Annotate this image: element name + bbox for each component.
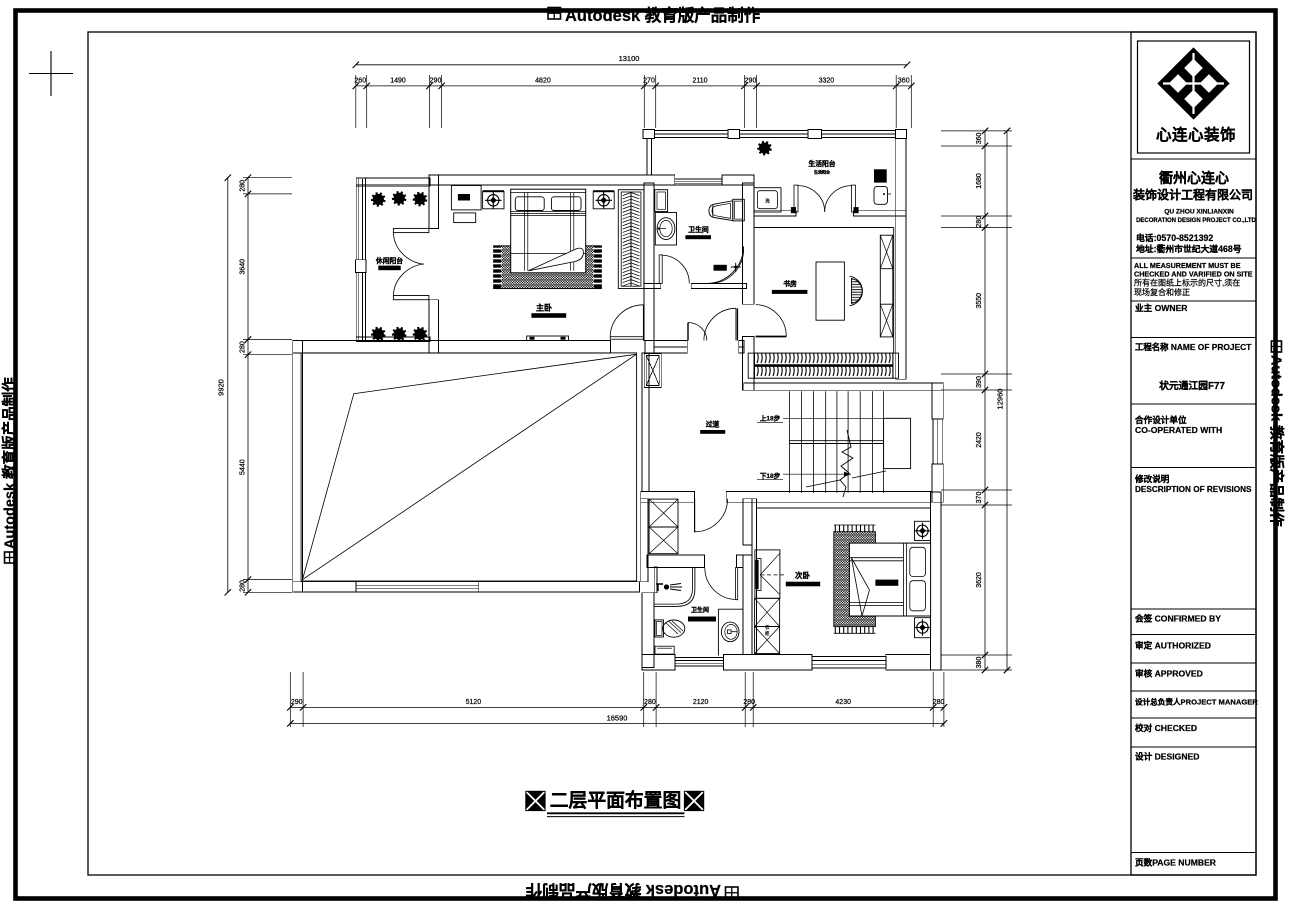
svg-text:二层平面布置图: 二层平面布置图 xyxy=(550,789,681,811)
svg-text:1680: 1680 xyxy=(976,173,983,189)
svg-text:2110: 2110 xyxy=(693,78,708,85)
svg-text:CO-OPERATED WITH: CO-OPERATED WITH xyxy=(1135,425,1222,435)
svg-text:上18步: 上18步 xyxy=(760,414,781,423)
svg-text:Autodesk 教育版产品制作: Autodesk 教育版产品制作 xyxy=(525,881,721,901)
svg-text:过道: 过道 xyxy=(706,420,720,429)
svg-text:5440: 5440 xyxy=(240,459,247,475)
svg-text:DESCRIPTION OF REVISIONS: DESCRIPTION OF REVISIONS xyxy=(1135,485,1252,494)
svg-text:衢州心连心: 衢州心连心 xyxy=(1159,170,1229,186)
svg-text:所有在图纸上标示的尺寸,须在: 所有在图纸上标示的尺寸,须在 xyxy=(1134,278,1240,288)
svg-text:次卧: 次卧 xyxy=(795,570,810,580)
svg-text:休闲阳台: 休闲阳台 xyxy=(375,256,403,265)
svg-text:Autodesk 教育版产品制作: Autodesk 教育版产品制作 xyxy=(565,5,761,25)
svg-text:370: 370 xyxy=(976,492,983,504)
svg-text:360: 360 xyxy=(898,78,910,85)
svg-text:270: 270 xyxy=(643,78,655,85)
svg-text:Autodesk 教育版产品制作: Autodesk 教育版产品制作 xyxy=(1268,355,1286,527)
svg-text:280: 280 xyxy=(240,180,247,192)
svg-text:洗: 洗 xyxy=(765,198,770,205)
svg-text:3550: 3550 xyxy=(976,293,983,309)
svg-text:3320: 3320 xyxy=(819,78,835,85)
svg-text:DECORATION DESIGN PROJECT CO.,: DECORATION DESIGN PROJECT CO.,LTD xyxy=(1136,218,1256,224)
svg-text:16590: 16590 xyxy=(607,714,628,723)
svg-text:13100: 13100 xyxy=(619,54,640,63)
svg-text:390: 390 xyxy=(976,376,983,388)
svg-text:290: 290 xyxy=(430,78,442,85)
svg-text:现场复合和修正: 现场复合和修正 xyxy=(1134,287,1190,297)
svg-text:1490: 1490 xyxy=(390,78,406,85)
svg-text:12960: 12960 xyxy=(996,389,1005,410)
svg-text:280: 280 xyxy=(240,341,247,353)
svg-text:卫生间: 卫生间 xyxy=(688,225,709,234)
svg-text:280: 280 xyxy=(976,216,983,228)
svg-text:4820: 4820 xyxy=(535,78,551,85)
svg-text:280: 280 xyxy=(933,699,945,706)
svg-text:卫生间: 卫生间 xyxy=(691,606,709,614)
svg-text:地址:衢州市世纪大道468号: 地址:衢州市世纪大道468号 xyxy=(1136,243,1242,254)
svg-text:审核 APPROVED: 审核 APPROVED xyxy=(1135,668,1203,679)
svg-text:Autodesk 教育版产品制作: Autodesk 教育版产品制作 xyxy=(1,377,19,549)
svg-text:4230: 4230 xyxy=(835,699,851,706)
svg-text:QU ZHOU XINLIANXIN: QU ZHOU XINLIANXIN xyxy=(1164,209,1234,216)
svg-text:衣: 衣 xyxy=(765,624,770,631)
svg-text:3620: 3620 xyxy=(976,572,983,588)
svg-text:生活阳台: 生活阳台 xyxy=(814,169,830,175)
svg-text:3640: 3640 xyxy=(240,259,247,275)
svg-text:合作设计单位: 合作设计单位 xyxy=(1135,414,1187,425)
svg-text:设计 DESIGNED: 设计 DESIGNED xyxy=(1135,751,1199,762)
svg-text:设计总负责人PROJECT MANAGER: 设计总负责人PROJECT MANAGER xyxy=(1135,697,1258,707)
svg-text:260: 260 xyxy=(354,78,366,85)
svg-text:380: 380 xyxy=(976,657,983,669)
svg-text:审定 AUTHORIZED: 审定 AUTHORIZED xyxy=(1135,640,1211,651)
svg-text:下18步: 下18步 xyxy=(760,471,781,480)
svg-text:书房: 书房 xyxy=(783,279,797,288)
svg-text:2420: 2420 xyxy=(976,432,983,448)
svg-text:CHECKED AND VARIFIED ON SITE: CHECKED AND VARIFIED ON SITE xyxy=(1134,270,1253,279)
svg-text:页数PAGE NUMBER: 页数PAGE NUMBER xyxy=(1135,857,1217,868)
svg-text:装饰设计工程有限公司: 装饰设计工程有限公司 xyxy=(1132,187,1253,202)
svg-text:生活阳台: 生活阳台 xyxy=(808,159,835,168)
svg-text:9920: 9920 xyxy=(217,379,226,396)
svg-text:280: 280 xyxy=(743,699,755,706)
svg-text:柜: 柜 xyxy=(765,630,770,637)
svg-text:状元通江园F77: 状元通江园F77 xyxy=(1159,379,1225,392)
svg-text:280: 280 xyxy=(644,699,656,706)
svg-text:2120: 2120 xyxy=(693,699,709,706)
svg-text:290: 290 xyxy=(291,699,303,706)
svg-text:心连心装饰: 心连心装饰 xyxy=(1156,125,1236,144)
svg-text:电话:0570-8521392: 电话:0570-8521392 xyxy=(1136,232,1213,243)
svg-text:修改说明: 修改说明 xyxy=(1134,473,1170,484)
svg-text:290: 290 xyxy=(745,78,757,85)
svg-text:360: 360 xyxy=(976,133,983,145)
svg-text:5120: 5120 xyxy=(466,699,482,706)
svg-text:工程名称 NAME OF PROJECT: 工程名称 NAME OF PROJECT xyxy=(1135,342,1252,352)
svg-text:校对 CHECKED: 校对 CHECKED xyxy=(1135,722,1197,733)
svg-text:280: 280 xyxy=(240,580,247,592)
svg-text:主卧: 主卧 xyxy=(536,303,552,313)
svg-text:会签 CONFIRMED BY: 会签 CONFIRMED BY xyxy=(1135,613,1221,624)
svg-text:业主 OWNER: 业主 OWNER xyxy=(1135,302,1188,313)
